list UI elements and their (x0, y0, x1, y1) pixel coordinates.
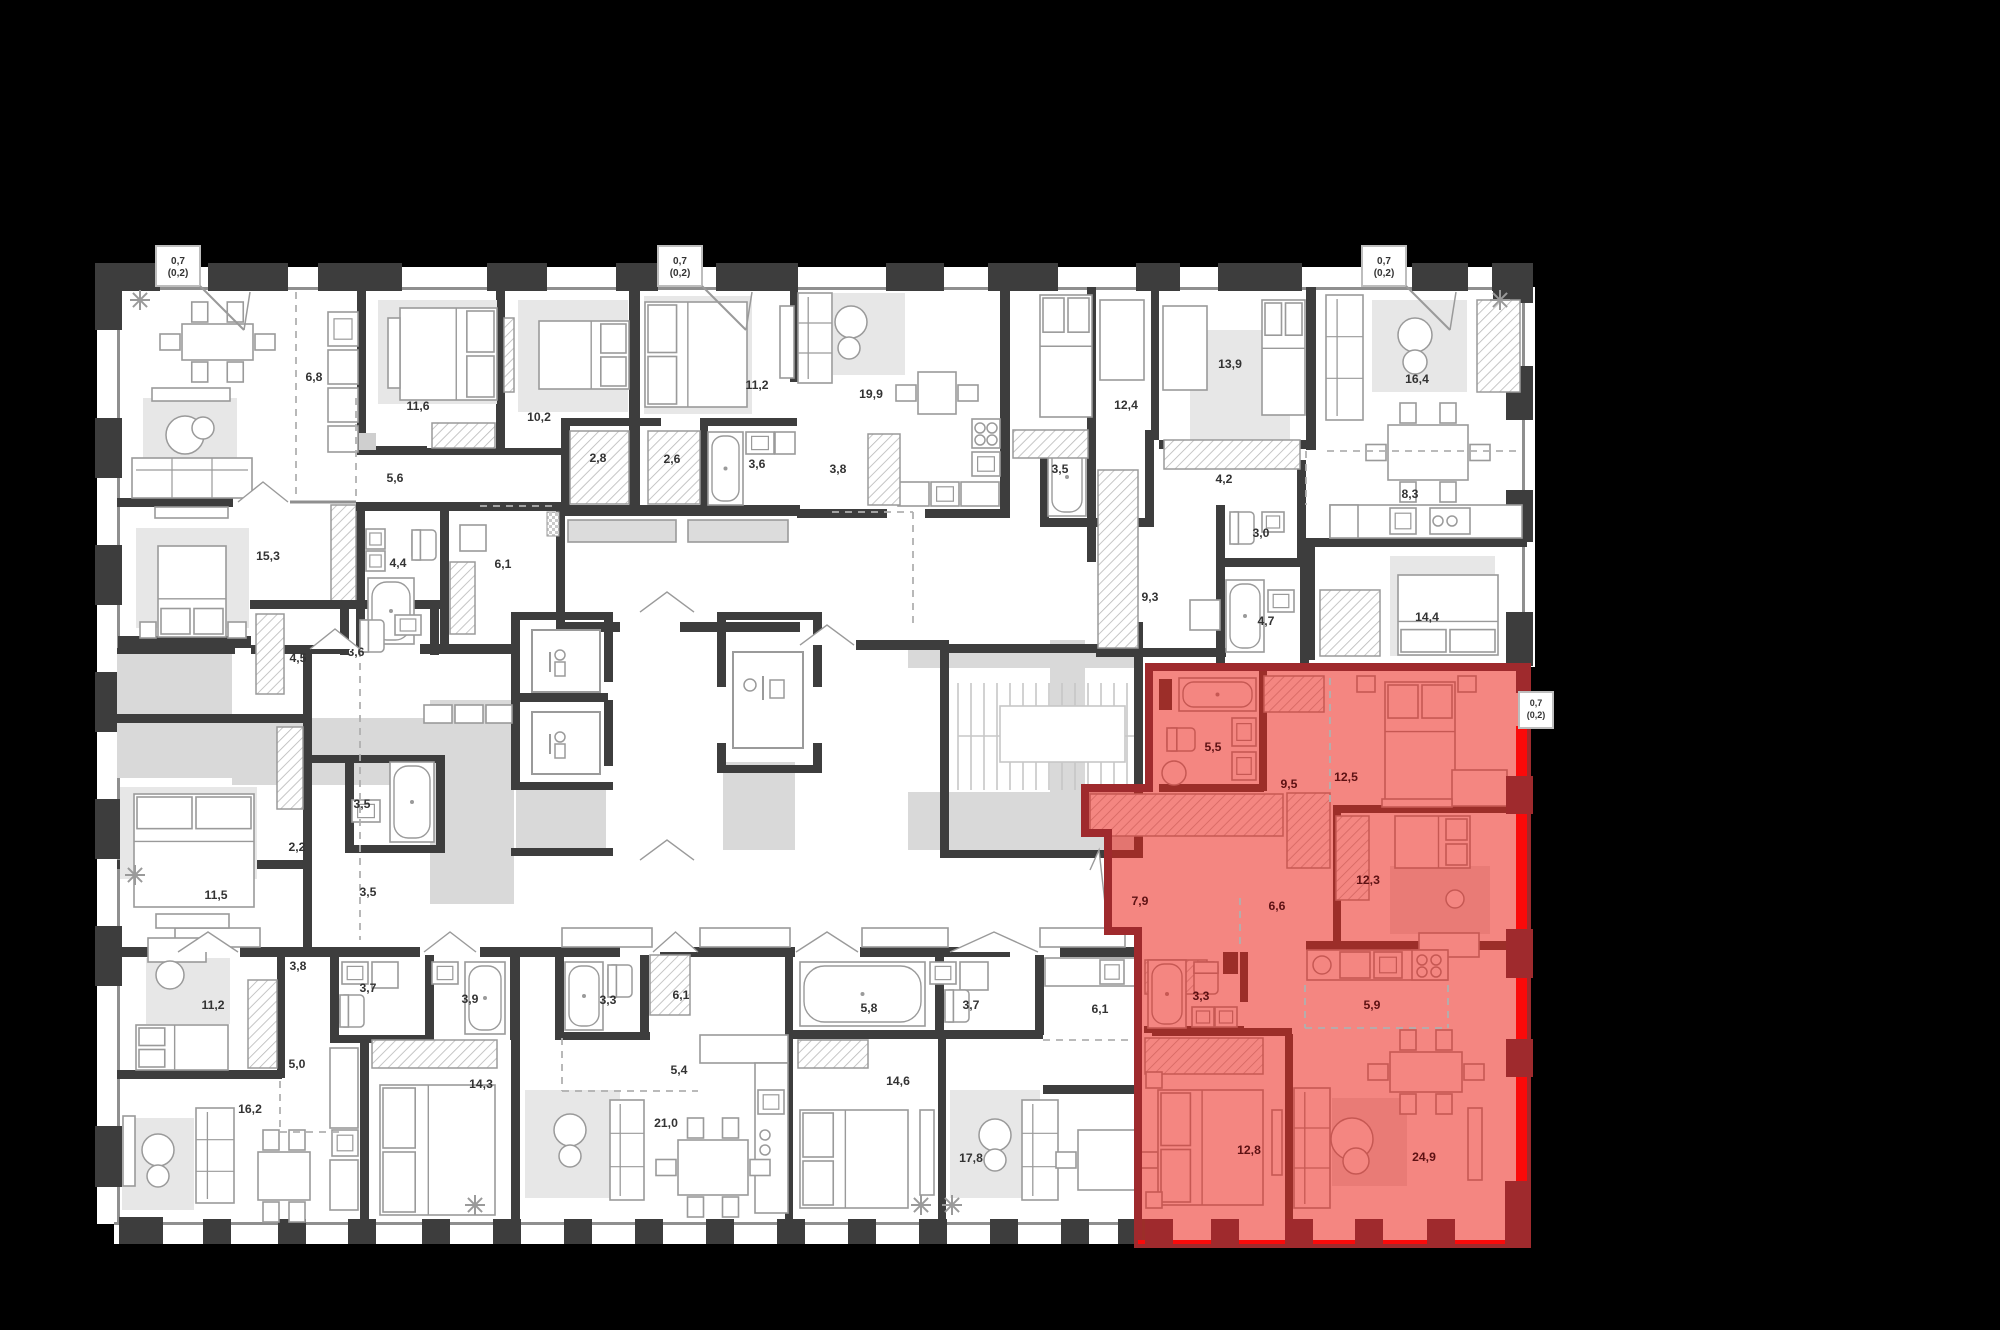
svg-text:16,2: 16,2 (238, 1102, 262, 1116)
svg-text:2,8: 2,8 (590, 451, 607, 465)
svg-text:2,2: 2,2 (289, 840, 306, 854)
svg-text:0,7: 0,7 (171, 256, 185, 267)
svg-text:3,3: 3,3 (600, 993, 617, 1007)
svg-text:0,7: 0,7 (673, 256, 687, 267)
svg-text:0,7: 0,7 (1530, 698, 1543, 708)
svg-text:3,9: 3,9 (462, 992, 479, 1006)
svg-text:(0,2): (0,2) (168, 268, 189, 279)
svg-text:5,8: 5,8 (861, 1001, 878, 1015)
svg-text:7,9: 7,9 (1132, 894, 1149, 908)
svg-text:3,3: 3,3 (1193, 989, 1210, 1003)
svg-text:4,2: 4,2 (1216, 472, 1233, 486)
svg-text:(0,2): (0,2) (1374, 268, 1395, 279)
svg-text:5,9: 5,9 (1364, 998, 1381, 1012)
svg-text:6,8: 6,8 (306, 370, 323, 384)
svg-text:4,4: 4,4 (390, 556, 407, 570)
svg-text:3,5: 3,5 (360, 885, 377, 899)
svg-text:3,8: 3,8 (290, 959, 307, 973)
svg-text:4,7: 4,7 (1258, 614, 1275, 628)
svg-text:3,7: 3,7 (963, 998, 980, 1012)
svg-text:12,8: 12,8 (1237, 1143, 1261, 1157)
svg-text:12,3: 12,3 (1356, 873, 1380, 887)
svg-text:15,3: 15,3 (256, 549, 280, 563)
svg-text:5,6: 5,6 (387, 471, 404, 485)
svg-text:17,8: 17,8 (959, 1151, 983, 1165)
svg-text:(0,2): (0,2) (1527, 710, 1546, 720)
svg-text:13,9: 13,9 (1218, 357, 1242, 371)
svg-text:3,0: 3,0 (1253, 526, 1270, 540)
svg-text:3,5: 3,5 (354, 797, 371, 811)
svg-text:(0,2): (0,2) (670, 268, 691, 279)
svg-text:24,9: 24,9 (1412, 1150, 1436, 1164)
svg-text:12,5: 12,5 (1334, 770, 1358, 784)
svg-text:3,6: 3,6 (749, 457, 766, 471)
svg-text:8,3: 8,3 (1402, 487, 1419, 501)
svg-text:5,4: 5,4 (671, 1063, 688, 1077)
svg-text:0,7: 0,7 (1377, 256, 1391, 267)
svg-text:11,2: 11,2 (201, 998, 224, 1012)
svg-text:4,5: 4,5 (290, 651, 307, 665)
svg-text:3,7: 3,7 (360, 981, 377, 995)
svg-text:3,5: 3,5 (1052, 462, 1069, 476)
svg-text:12,4: 12,4 (1114, 398, 1138, 412)
svg-text:9,3: 9,3 (1142, 590, 1159, 604)
svg-text:11,6: 11,6 (406, 399, 429, 413)
svg-text:9,5: 9,5 (1281, 777, 1298, 791)
svg-text:19,9: 19,9 (859, 387, 883, 401)
svg-text:14,4: 14,4 (1415, 610, 1439, 624)
svg-text:5,5: 5,5 (1205, 740, 1222, 754)
svg-text:6,1: 6,1 (673, 988, 690, 1002)
svg-text:14,3: 14,3 (469, 1077, 493, 1091)
svg-text:10,2: 10,2 (527, 410, 551, 424)
svg-text:14,6: 14,6 (886, 1074, 910, 1088)
svg-text:6,6: 6,6 (1269, 899, 1286, 913)
svg-text:11,2: 11,2 (745, 378, 768, 392)
svg-text:11,5: 11,5 (204, 888, 227, 902)
svg-text:16,4: 16,4 (1405, 372, 1429, 386)
svg-text:21,0: 21,0 (654, 1116, 678, 1130)
svg-text:5,0: 5,0 (289, 1057, 306, 1071)
svg-text:6,1: 6,1 (1092, 1002, 1109, 1016)
svg-text:6,1: 6,1 (495, 557, 512, 571)
svg-text:2,6: 2,6 (664, 452, 681, 466)
svg-text:3,8: 3,8 (830, 462, 847, 476)
